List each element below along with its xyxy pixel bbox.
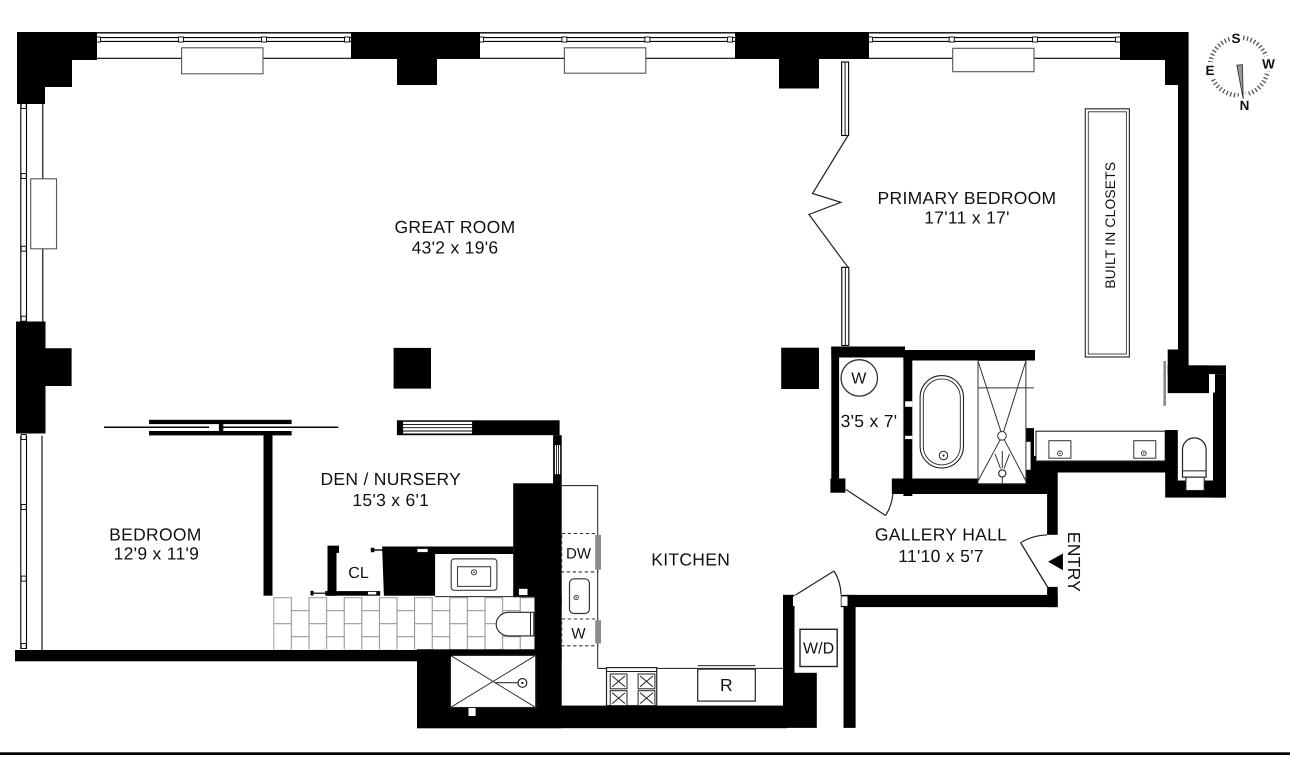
svg-text:DW: DW <box>566 546 592 563</box>
svg-text:R: R <box>720 675 733 695</box>
svg-text:BEDROOM: BEDROOM <box>109 524 202 544</box>
svg-text:15'3 x 6'1: 15'3 x 6'1 <box>352 490 429 510</box>
svg-text:E: E <box>1205 63 1214 78</box>
svg-text:12'9 x 11'9: 12'9 x 11'9 <box>114 543 200 563</box>
svg-text:W: W <box>851 371 867 388</box>
svg-text:W: W <box>571 625 586 642</box>
svg-text:BUILT IN CLOSETS: BUILT IN CLOSETS <box>1103 162 1118 289</box>
svg-text:3'5 x 7': 3'5 x 7' <box>841 411 898 431</box>
svg-text:S: S <box>1231 31 1240 46</box>
svg-text:17'11 x 17': 17'11 x 17' <box>924 208 1010 228</box>
svg-text:GREAT ROOM: GREAT ROOM <box>395 217 516 237</box>
svg-text:KITCHEN: KITCHEN <box>651 550 730 570</box>
svg-text:ENTRY: ENTRY <box>1064 532 1084 593</box>
svg-text:CL: CL <box>348 565 369 582</box>
svg-text:N: N <box>1240 98 1250 113</box>
svg-text:PRIMARY BEDROOM: PRIMARY BEDROOM <box>878 188 1057 208</box>
svg-text:DEN / NURSERY: DEN / NURSERY <box>320 469 461 489</box>
svg-text:11'10 x 5'7: 11'10 x 5'7 <box>898 546 984 566</box>
svg-text:43'2 x 19'6: 43'2 x 19'6 <box>412 238 499 258</box>
svg-text:GALLERY HALL: GALLERY HALL <box>875 525 1007 545</box>
svg-text:W/D: W/D <box>803 641 834 658</box>
svg-text:W: W <box>1262 57 1275 72</box>
